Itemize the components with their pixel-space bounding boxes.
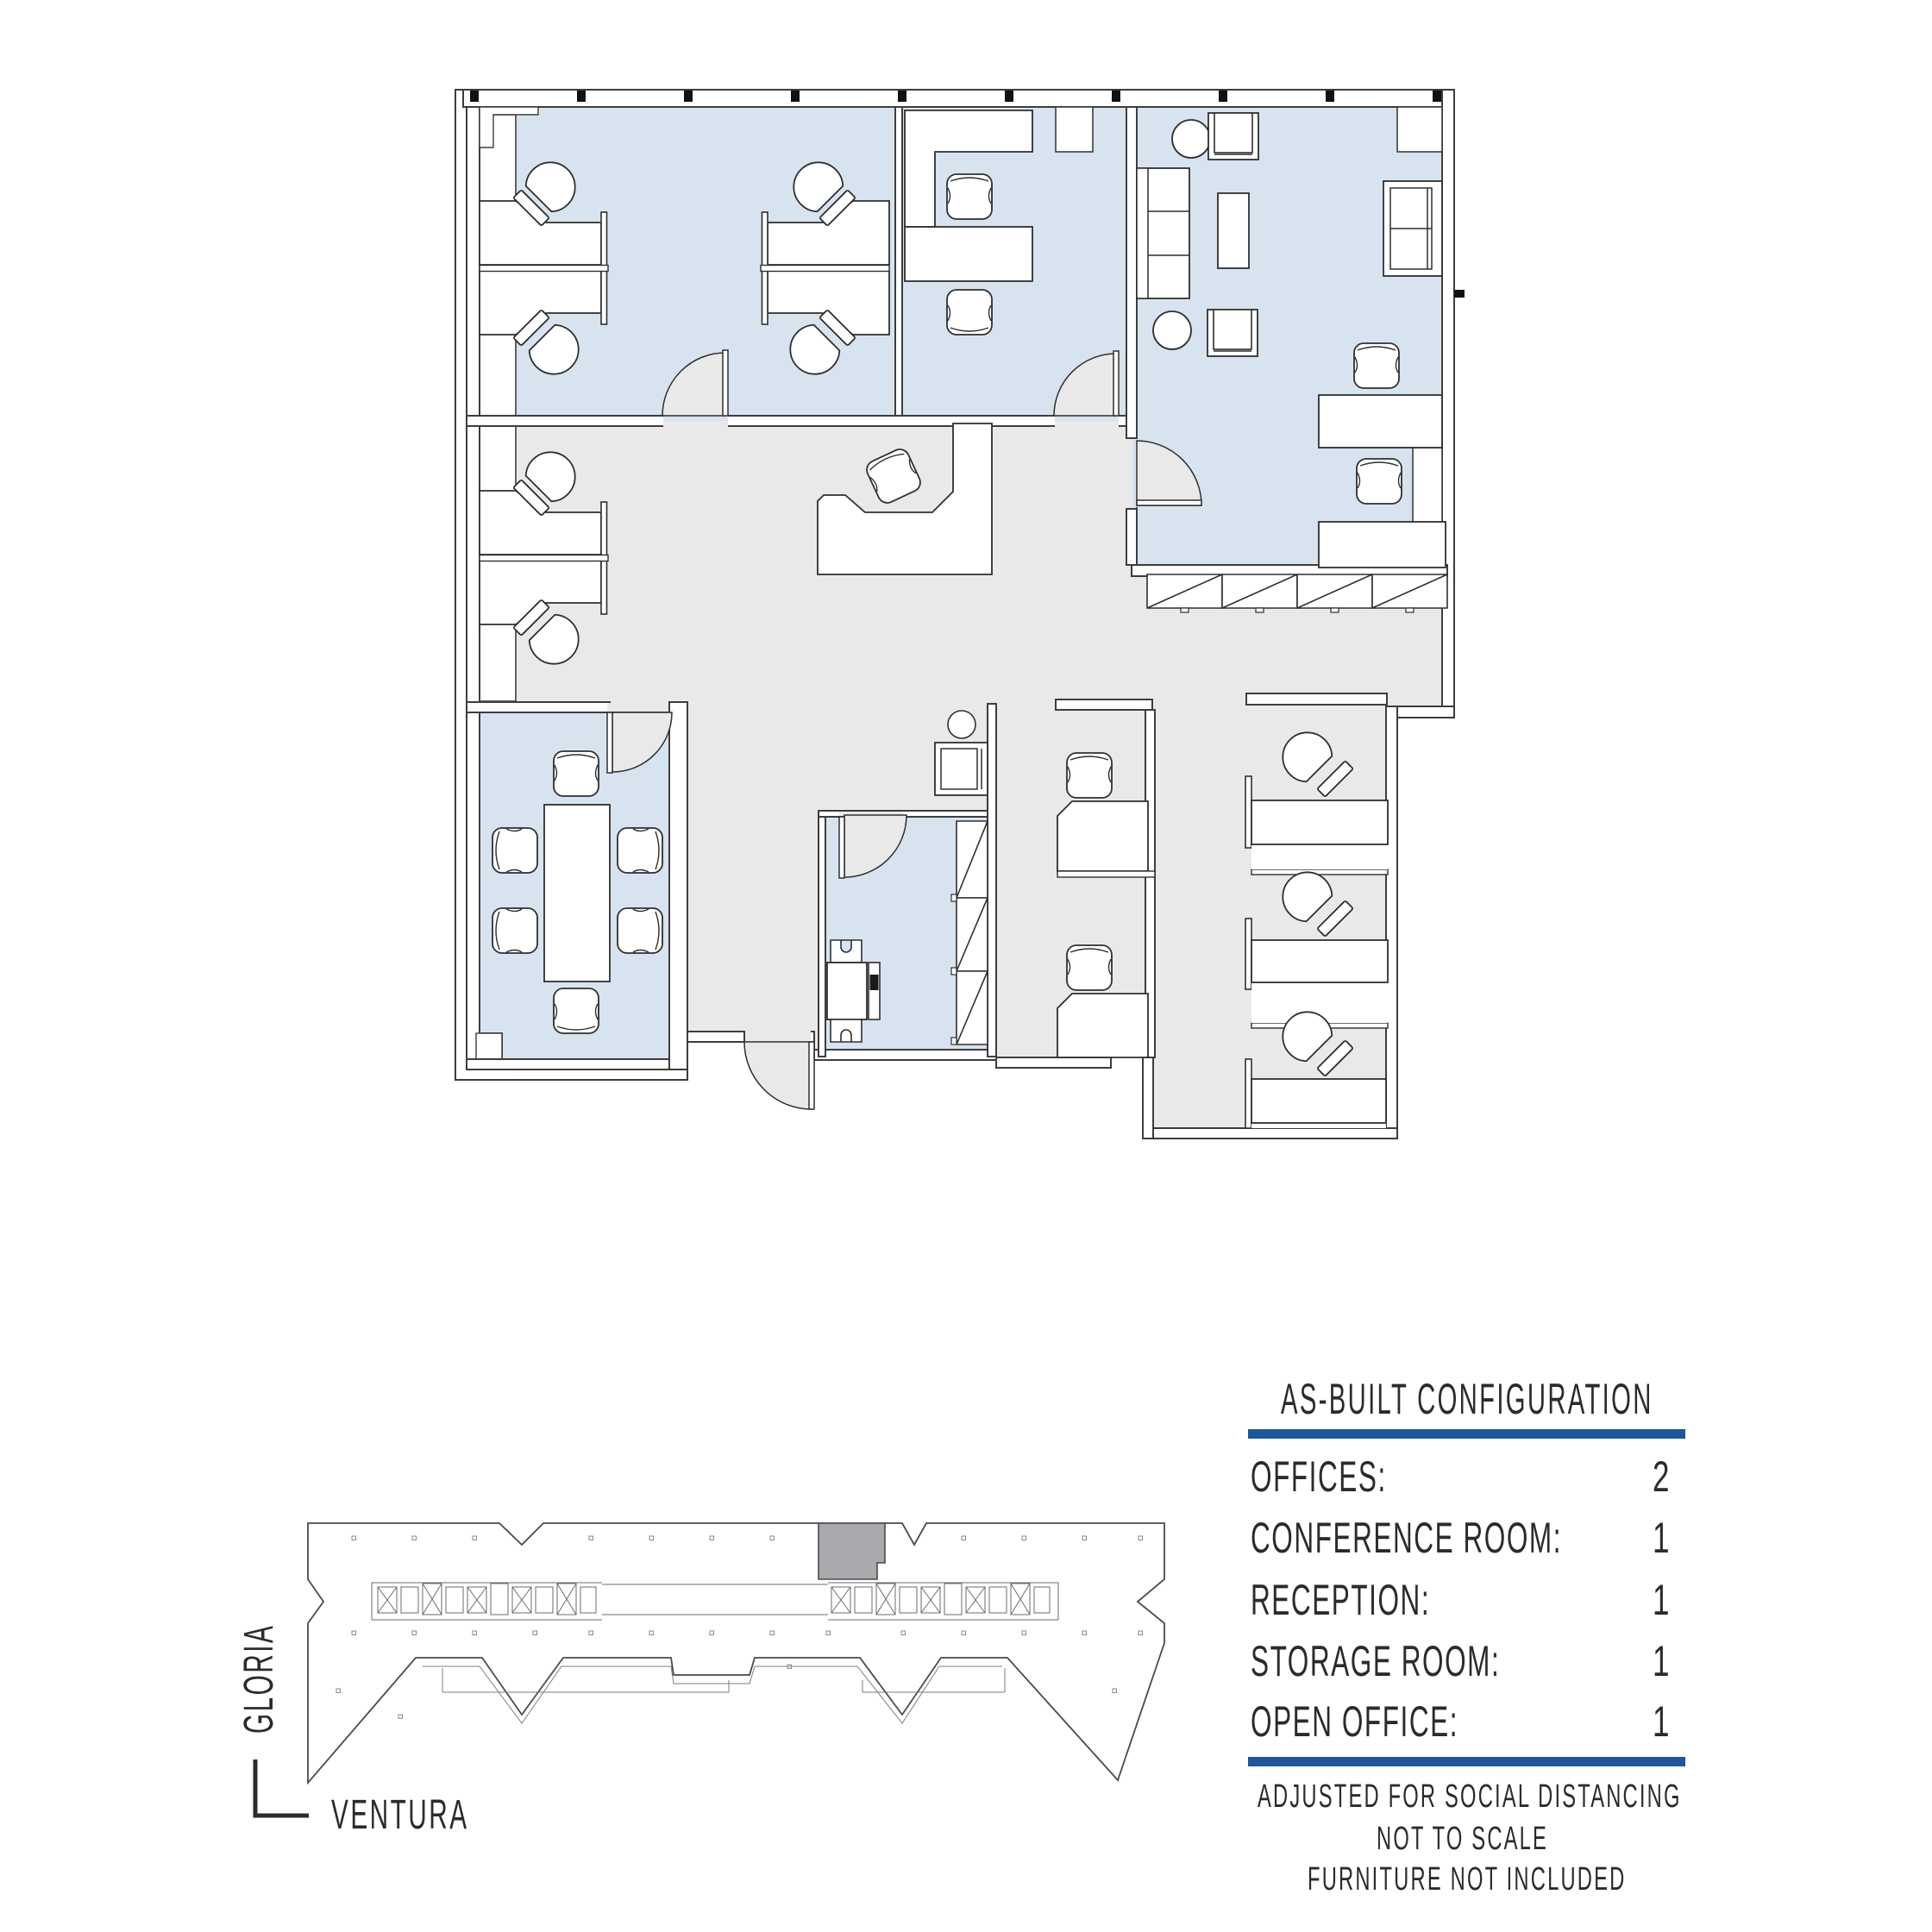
svg-text:1: 1 (1653, 1577, 1669, 1625)
svg-text:ADJUSTED FOR SOCIAL DISTANCING: ADJUSTED FOR SOCIAL DISTANCING (1258, 1777, 1682, 1814)
svg-text:VENTURA: VENTURA (331, 1792, 469, 1838)
svg-text:1: 1 (1653, 1515, 1669, 1563)
svg-text:NOT TO SCALE: NOT TO SCALE (1377, 1819, 1548, 1856)
svg-text:CONFERENCE ROOM:: CONFERENCE ROOM: (1251, 1514, 1562, 1562)
svg-text:2: 2 (1653, 1453, 1669, 1502)
svg-text:1: 1 (1653, 1638, 1669, 1686)
svg-text:OFFICES:: OFFICES: (1251, 1452, 1387, 1501)
svg-text:FURNITURE NOT INCLUDED: FURNITURE NOT INCLUDED (1308, 1860, 1626, 1897)
svg-text:1: 1 (1653, 1698, 1669, 1747)
svg-text:GLORIA: GLORIA (236, 1624, 282, 1734)
svg-text:RECEPTION:: RECEPTION: (1251, 1576, 1430, 1624)
svg-text:AS-BUILT CONFIGURATION: AS-BUILT CONFIGURATION (1281, 1375, 1653, 1423)
svg-text:OPEN OFFICE:: OPEN OFFICE: (1251, 1697, 1458, 1746)
svg-text:STORAGE ROOM:: STORAGE ROOM: (1251, 1637, 1500, 1685)
